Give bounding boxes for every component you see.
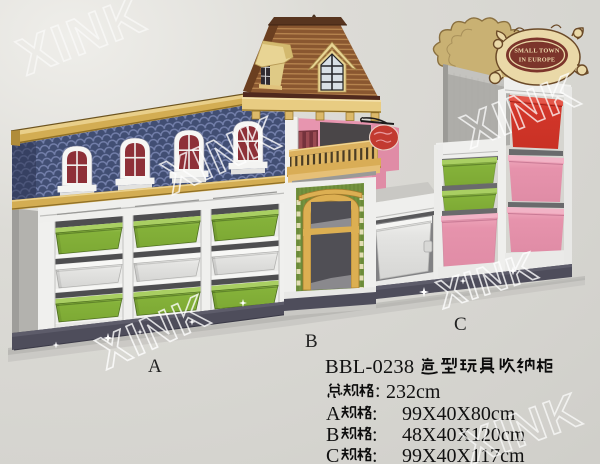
svg-text:BBL-0238: BBL-0238 — [325, 356, 414, 378]
svg-text::: : — [372, 424, 378, 446]
svg-text:SMALL TOWN: SMALL TOWN — [514, 48, 560, 55]
svg-text:B: B — [305, 331, 318, 352]
svg-text:B: B — [326, 424, 339, 446]
svg-text:IN EUROPE: IN EUROPE — [519, 57, 556, 64]
svg-text:232cm: 232cm — [386, 381, 441, 403]
svg-text::: : — [372, 445, 378, 464]
svg-text:A: A — [326, 403, 341, 425]
svg-text::: : — [372, 403, 378, 425]
svg-text::: : — [375, 380, 381, 402]
svg-text:C: C — [326, 445, 339, 464]
svg-text:C: C — [454, 314, 467, 335]
